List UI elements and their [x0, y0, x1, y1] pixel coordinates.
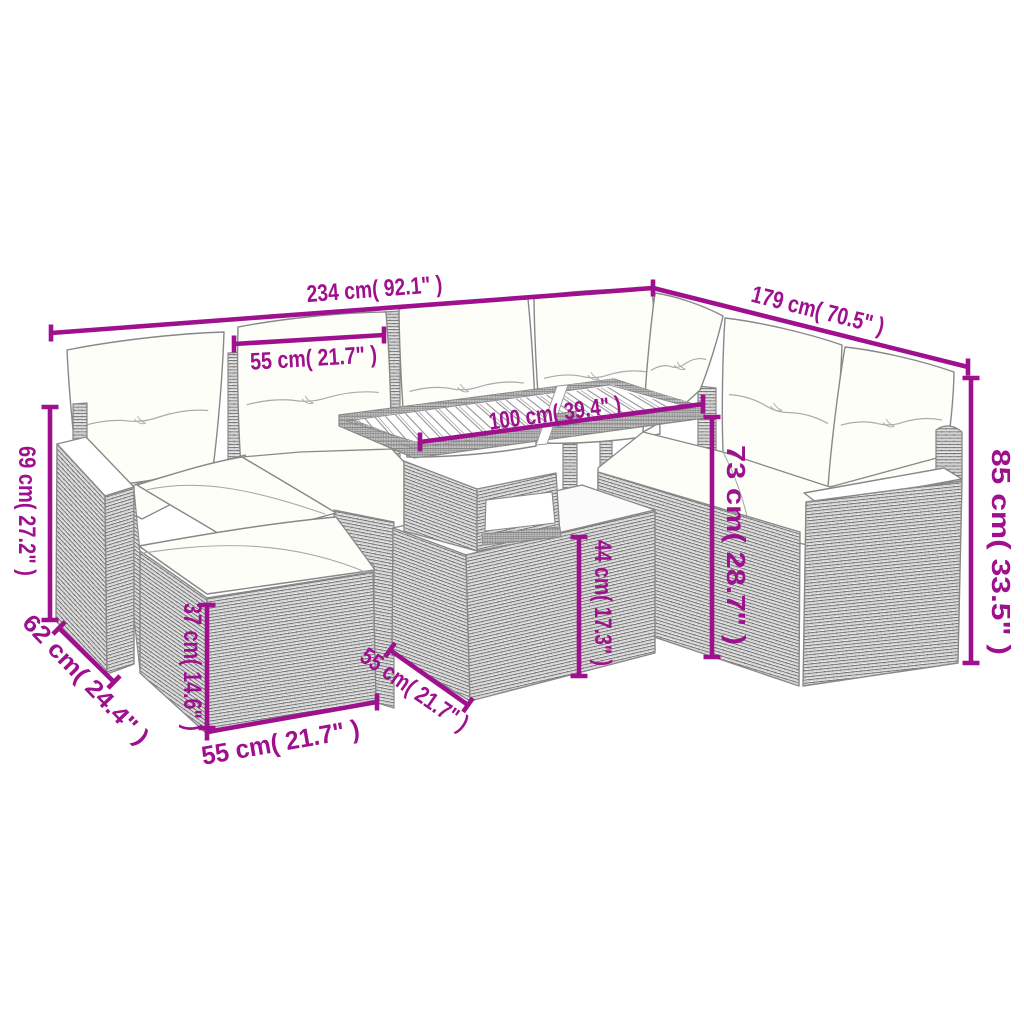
svg-text:69 cm( 27.2" ): 69 cm( 27.2" )	[13, 446, 40, 576]
svg-text:85 cm( 33.5" ): 85 cm( 33.5" )	[986, 449, 1016, 655]
svg-text:44 cm( 17.3" ): 44 cm( 17.3" )	[589, 540, 616, 666]
svg-text:37 cm( 14.6" ): 37 cm( 14.6" )	[178, 603, 206, 731]
svg-text:73 cm( 28.7" ): 73 cm( 28.7" )	[721, 445, 751, 645]
